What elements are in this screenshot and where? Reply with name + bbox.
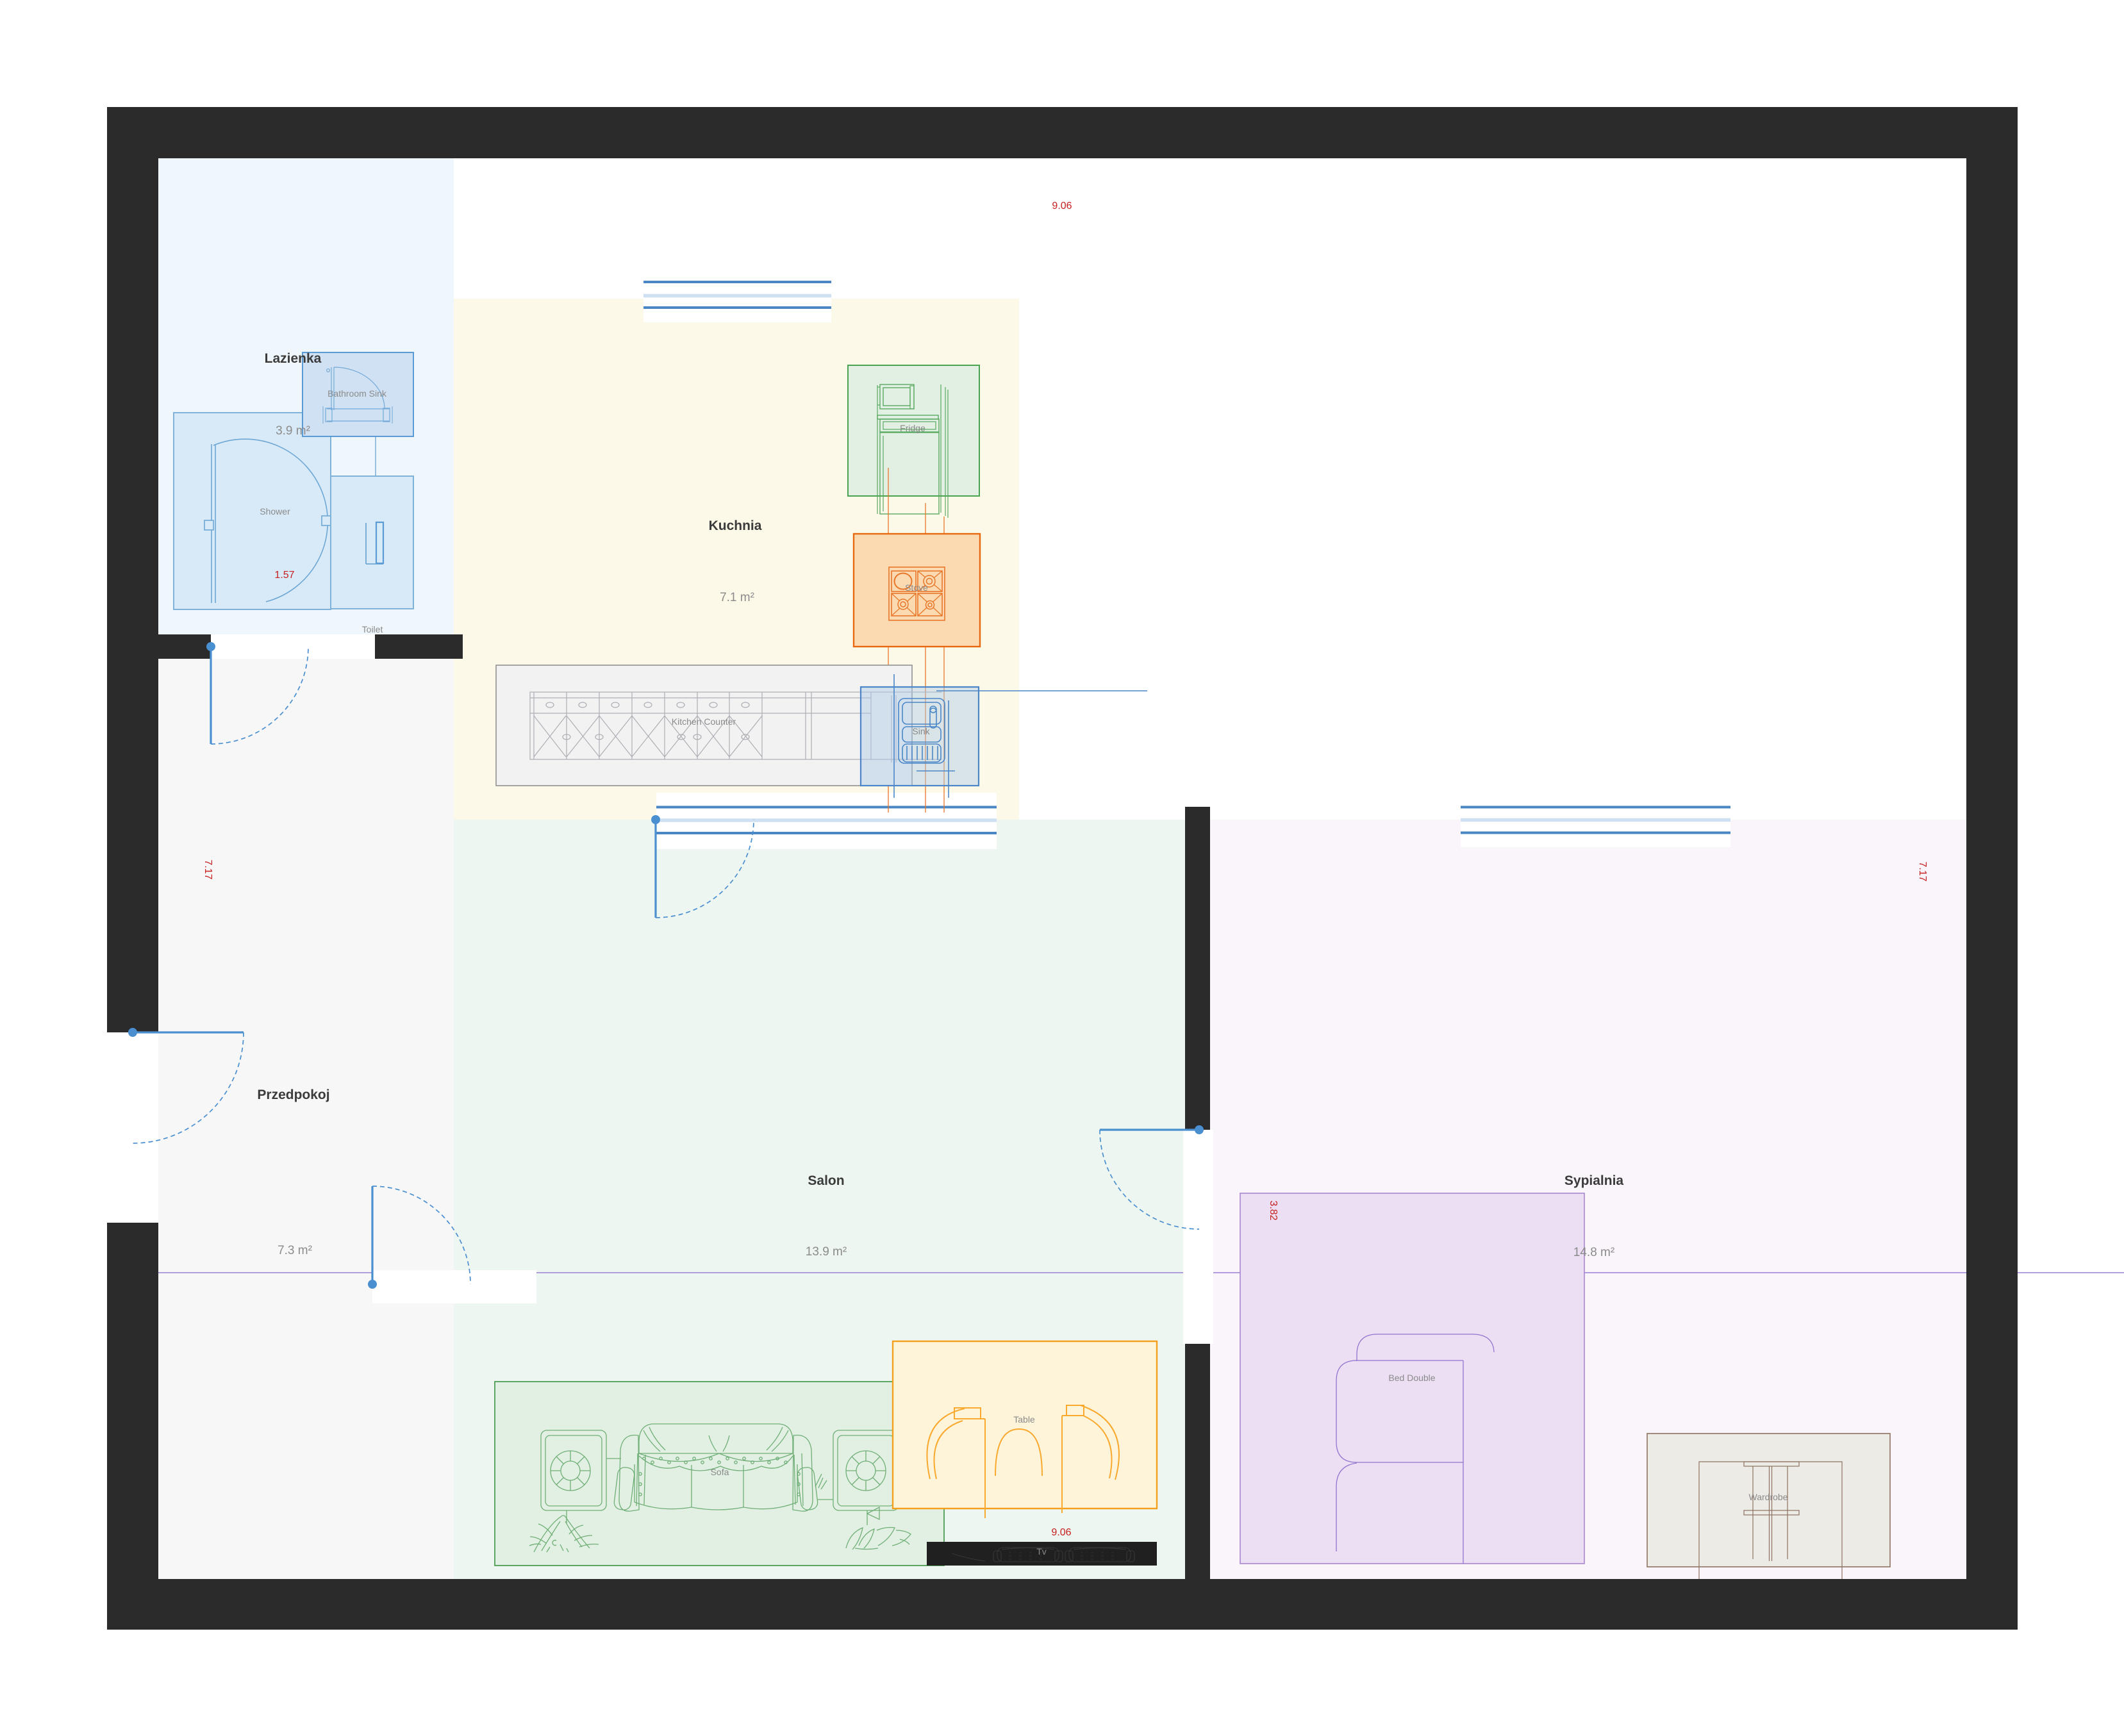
- svg-text:14.8 m²: 14.8 m²: [1573, 1246, 1614, 1259]
- svg-text:9.06: 9.06: [1052, 201, 1072, 211]
- svg-text:13.9 m²: 13.9 m²: [806, 1245, 847, 1259]
- svg-text:Bed Double: Bed Double: [1388, 1373, 1435, 1383]
- svg-text:Table: Table: [1013, 1414, 1035, 1425]
- svg-text:Sink: Sink: [912, 726, 930, 736]
- svg-text:Bathroom Sink: Bathroom Sink: [328, 388, 387, 399]
- svg-text:Tv: Tv: [1036, 1546, 1047, 1557]
- svg-text:Kitchen Counter: Kitchen Counter: [672, 716, 736, 727]
- svg-text:7.1 m²: 7.1 m²: [720, 591, 754, 604]
- svg-text:Lazienka: Lazienka: [265, 351, 322, 366]
- svg-text:Sofa: Sofa: [711, 1467, 729, 1477]
- svg-text:Shower: Shower: [260, 506, 290, 517]
- svg-text:Salon: Salon: [808, 1173, 844, 1188]
- svg-text:Toilet: Toilet: [362, 624, 383, 634]
- svg-text:Fridge: Fridge: [900, 423, 925, 433]
- svg-text:Sypialnia: Sypialnia: [1564, 1173, 1624, 1188]
- svg-text:9.06: 9.06: [1051, 1527, 1071, 1538]
- svg-text:3.9 m²: 3.9 m²: [276, 424, 310, 438]
- svg-text:1.57: 1.57: [274, 570, 294, 581]
- svg-text:3.82: 3.82: [1268, 1200, 1279, 1220]
- svg-text:Przedpokoj: Przedpokoj: [257, 1087, 329, 1102]
- svg-text:7.3 m²: 7.3 m²: [278, 1244, 312, 1257]
- svg-text:Kuchnia: Kuchnia: [709, 518, 762, 533]
- svg-text:7.17: 7.17: [1917, 861, 1928, 881]
- svg-text:7.17: 7.17: [203, 859, 213, 879]
- svg-text:Wardrobe: Wardrobe: [1749, 1492, 1788, 1502]
- svg-text:Stove: Stove: [905, 583, 928, 593]
